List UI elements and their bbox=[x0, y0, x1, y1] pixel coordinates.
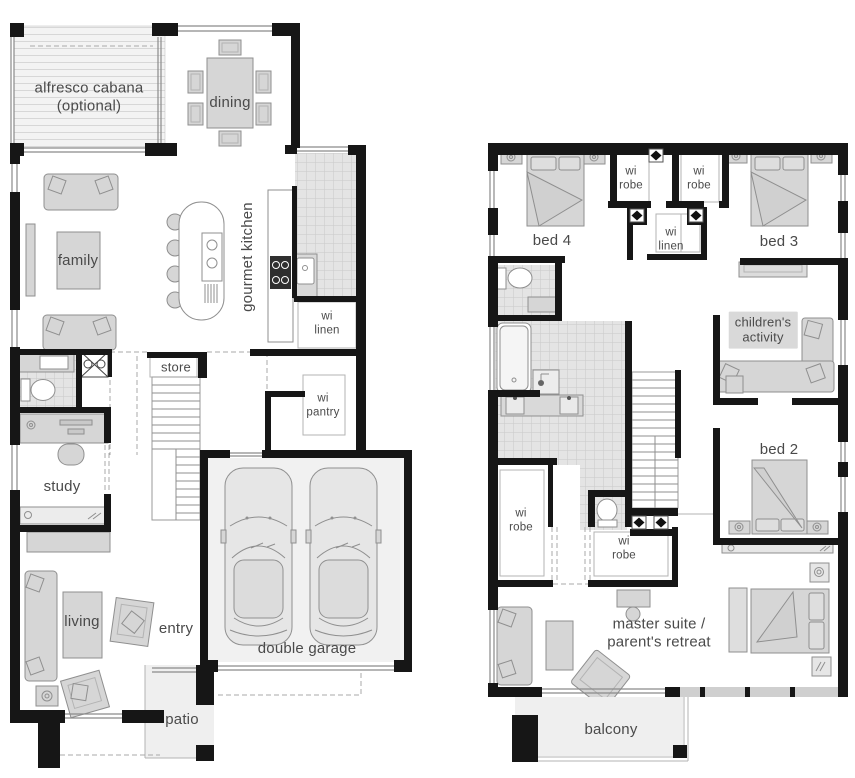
label-gourmet-kitchen: gourmet kitchen bbox=[239, 202, 257, 312]
label-dining: dining bbox=[209, 94, 250, 112]
label-entry: entry bbox=[159, 620, 193, 638]
dining-table-set bbox=[188, 40, 271, 146]
cooktop bbox=[270, 256, 291, 289]
label-balcony: balcony bbox=[584, 721, 637, 739]
label-family: family bbox=[58, 252, 98, 270]
garage bbox=[208, 458, 404, 662]
label-wi-robe-top-right: wi robe bbox=[687, 165, 711, 192]
diamond-marker bbox=[649, 149, 663, 162]
stairs-first bbox=[632, 372, 713, 514]
label-bed4: bed 4 bbox=[533, 232, 572, 250]
diamond-marker bbox=[654, 516, 668, 529]
master-ottoman bbox=[546, 621, 573, 670]
floorplan-canvas: alfresco cabana (optional) dining family… bbox=[0, 0, 855, 778]
label-wi-robe-master-left: wi robe bbox=[509, 507, 533, 534]
label-wi-pantry: wi pantry bbox=[306, 392, 339, 419]
living-side-table bbox=[36, 686, 58, 706]
diamond-marker bbox=[632, 516, 646, 529]
label-bed2: bed 2 bbox=[760, 441, 799, 459]
powder-room bbox=[17, 352, 108, 407]
toilet-bowl bbox=[31, 380, 55, 401]
living-furniture bbox=[25, 571, 154, 718]
hall-sideboard bbox=[27, 532, 110, 552]
dining-table bbox=[207, 58, 253, 128]
floorplan-drawing bbox=[0, 0, 855, 778]
bed3-furniture bbox=[726, 150, 832, 226]
toilet-tank bbox=[21, 379, 30, 401]
childrens-table bbox=[726, 376, 743, 393]
toilet-top bbox=[508, 268, 532, 288]
toilet-wc bbox=[597, 499, 617, 521]
diamond-marker bbox=[630, 209, 644, 222]
master-rug bbox=[729, 588, 747, 652]
stairs-ground bbox=[152, 377, 200, 520]
label-study: study bbox=[44, 478, 81, 496]
label-wi-robe-master-right: wi robe bbox=[612, 535, 636, 562]
first-dashed-lines bbox=[552, 527, 590, 584]
label-living: living bbox=[64, 613, 99, 631]
label-double-garage: double garage bbox=[258, 640, 357, 658]
label-alfresco: alfresco cabana (optional) bbox=[35, 79, 144, 114]
label-wi-linen-first: wi linen bbox=[658, 226, 683, 253]
bed4-furniture bbox=[501, 151, 605, 226]
car-left bbox=[221, 468, 296, 645]
diamond-marker bbox=[689, 209, 703, 222]
label-bed3: bed 3 bbox=[760, 233, 799, 251]
label-wi-robe-top-left: wi robe bbox=[619, 165, 643, 192]
master-chest bbox=[617, 590, 650, 607]
label-store: store bbox=[161, 359, 191, 374]
label-master-suite: master suite / parent's retreat bbox=[607, 615, 711, 650]
car-right bbox=[306, 468, 381, 645]
study-chair bbox=[58, 444, 84, 465]
family-sideboard bbox=[26, 224, 35, 296]
study-shelf bbox=[20, 507, 108, 524]
wall-desk bbox=[722, 544, 833, 553]
label-patio: patio bbox=[165, 711, 199, 729]
label-wi-linen-ground: wi linen bbox=[314, 310, 339, 337]
label-childrens-activity: children's activity bbox=[729, 312, 798, 349]
